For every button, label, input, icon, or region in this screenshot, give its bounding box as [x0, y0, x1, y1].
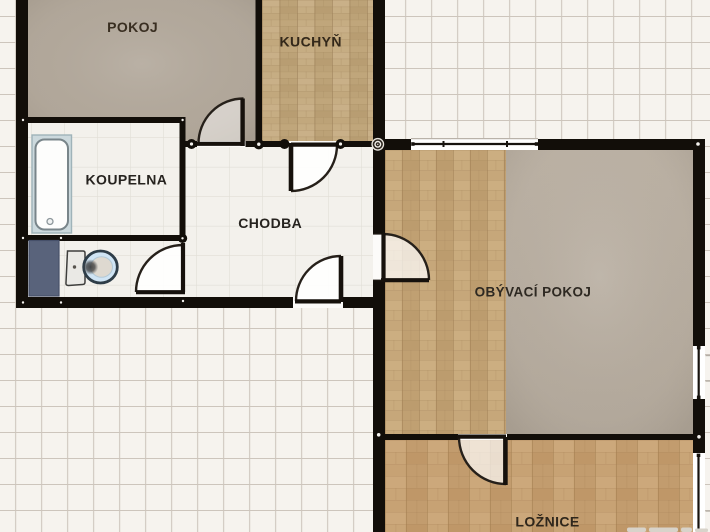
svg-text:CHODBA: CHODBA: [238, 215, 302, 231]
svg-text:KUCHYŇ: KUCHYŇ: [280, 33, 342, 50]
svg-text:OBÝVACÍ POKOJ: OBÝVACÍ POKOJ: [475, 285, 592, 300]
svg-text:POKOJ: POKOJ: [107, 19, 158, 35]
svg-text:LOŽNICE: LOŽNICE: [515, 512, 579, 529]
svg-text:KOUPELNA: KOUPELNA: [86, 171, 168, 187]
